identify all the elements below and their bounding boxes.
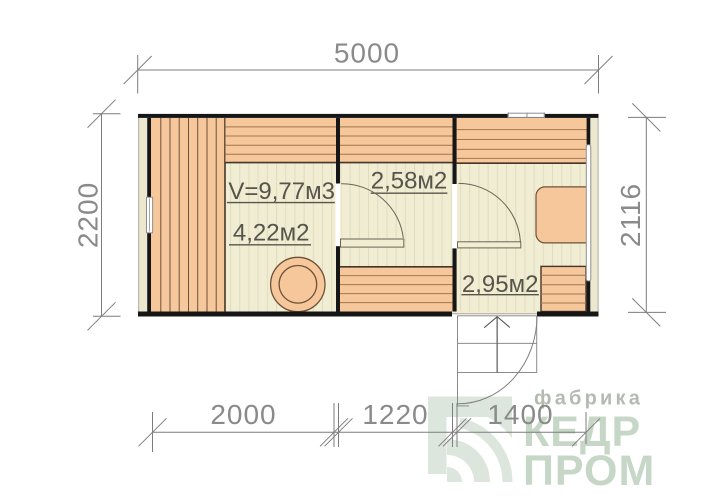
svg-text:5000: 5000 bbox=[334, 38, 400, 69]
svg-text:2,95м2: 2,95м2 bbox=[462, 271, 539, 298]
svg-text:2200: 2200 bbox=[73, 182, 104, 248]
svg-text:1220: 1220 bbox=[362, 399, 428, 430]
svg-text:2,58м2: 2,58м2 bbox=[371, 168, 448, 195]
svg-text:4,22м2: 4,22м2 bbox=[233, 219, 310, 246]
svg-text:2000: 2000 bbox=[210, 399, 276, 430]
svg-text:1400: 1400 bbox=[487, 399, 553, 430]
svg-text:2116: 2116 bbox=[615, 183, 646, 247]
svg-text:V=9,77м3: V=9,77м3 bbox=[228, 178, 335, 205]
svg-text:ПРОМ: ПРОМ bbox=[523, 447, 655, 495]
